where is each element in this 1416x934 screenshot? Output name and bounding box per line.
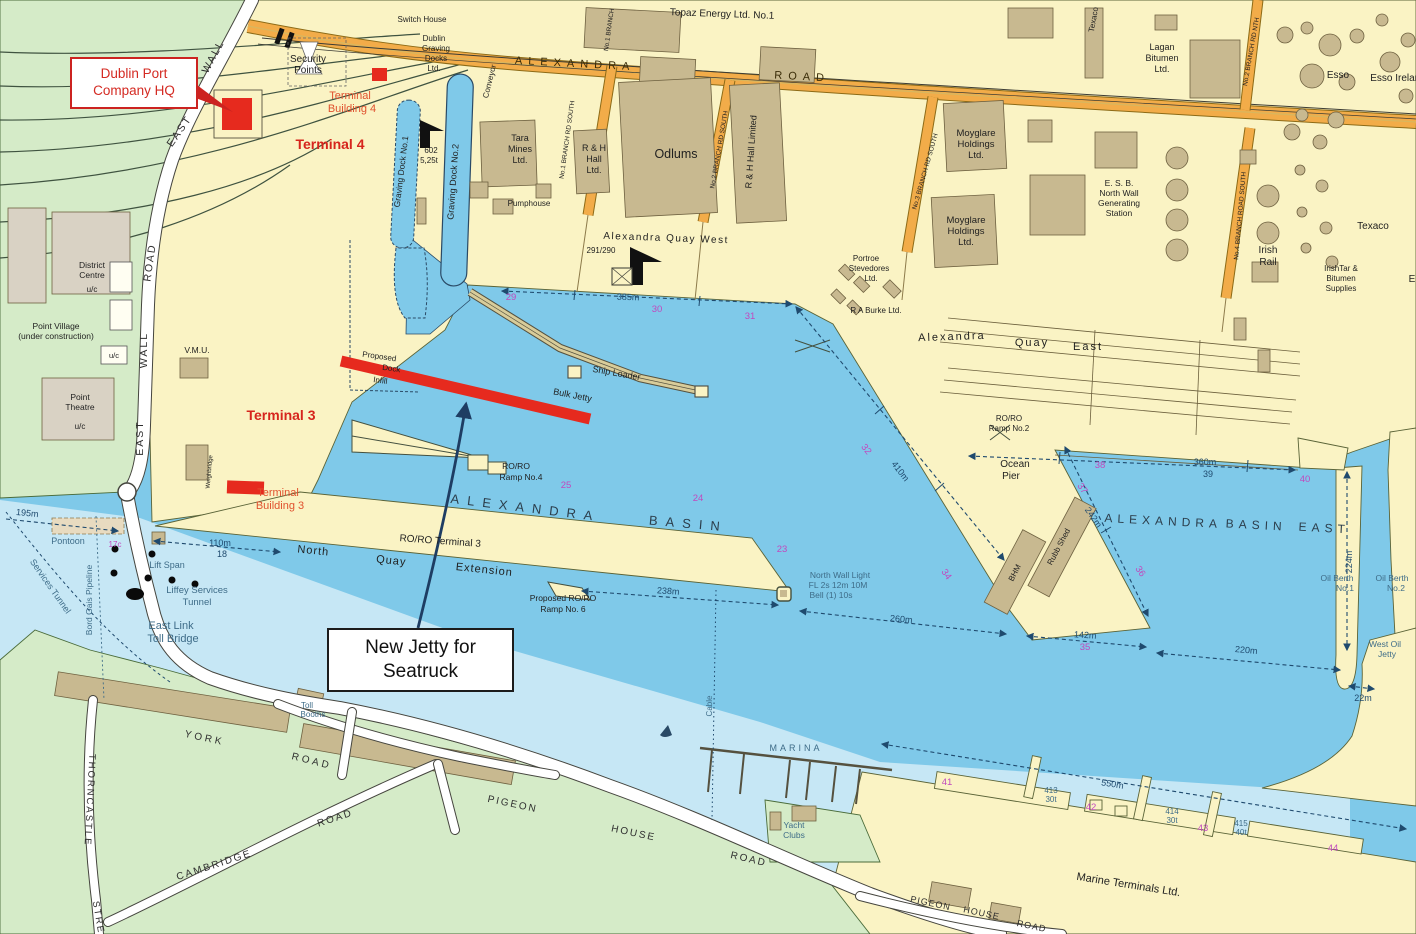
roundabout <box>118 483 136 501</box>
map-label: 42 <box>1086 802 1097 813</box>
map-label: RO/RO <box>996 414 1022 423</box>
map-label: Ramp No.2 <box>989 424 1030 433</box>
map-label: Proposed RO/RO <box>530 593 597 603</box>
map-label: Ocean <box>1000 459 1029 470</box>
map-label: Generating <box>1098 198 1140 208</box>
map-label: Mines <box>508 144 533 154</box>
map-label: Toll <box>301 701 313 710</box>
map-label: 5,25t <box>420 156 439 165</box>
map-label: Rail <box>1259 257 1276 268</box>
map-label: R & H <box>582 143 606 153</box>
map-label: Pumphouse <box>508 199 551 208</box>
map-label: 291/290 <box>587 246 616 255</box>
map-label: Moyglare <box>946 215 985 226</box>
map-label: Station <box>1106 208 1133 218</box>
map-label: Ltd. <box>968 150 984 161</box>
map-label: Terminal <box>257 487 299 499</box>
map-label: East <box>1073 341 1103 353</box>
map-label: Building 3 <box>256 500 304 512</box>
callout-seatruck-line1: New Jetty for <box>329 636 512 660</box>
map-label: 39 <box>1203 469 1213 479</box>
callout-hq-line1: Dublin Port <box>72 66 196 83</box>
map-label: EAST <box>1298 520 1350 537</box>
map-label: EAST <box>134 420 146 455</box>
map-label: Theatre <box>65 402 95 412</box>
map-label: u/c <box>87 285 98 294</box>
map-label: Cable <box>705 695 714 716</box>
map-label: Ltd. <box>1154 64 1169 74</box>
pontoon-symbol <box>52 518 124 534</box>
map-label: Points <box>294 65 322 76</box>
map-label: Ltd. <box>512 155 527 165</box>
map-label: 385m <box>617 292 640 303</box>
map-label: East Link <box>148 620 194 632</box>
map-label: MARINA <box>769 743 822 753</box>
callout-new-jetty-seatruck: New Jetty for Seatruck <box>327 628 514 692</box>
map-label: 414 <box>1165 807 1179 816</box>
callout-hq-line2: Company HQ <box>72 83 196 100</box>
map-label: 602 <box>424 146 438 155</box>
map-label: 43 <box>1198 823 1209 834</box>
map-label: Clubs <box>783 830 805 840</box>
map-label: Holdings <box>948 226 985 237</box>
map-label: E <box>1409 274 1416 285</box>
ship-loader-symbol <box>568 366 581 378</box>
map-label: 35 <box>1080 642 1091 653</box>
map-label: Lagan <box>1149 42 1174 52</box>
map-label: 41 <box>942 777 953 788</box>
map-label: District <box>79 260 106 270</box>
map-label: 30t <box>1166 816 1178 825</box>
map-label: Security <box>290 54 326 65</box>
map-label: Liffey Services <box>166 585 228 596</box>
map-label: Odlums <box>654 147 697 161</box>
callout-seatruck-line2: Seatruck <box>329 660 512 684</box>
map-label: Stevedores <box>849 264 889 273</box>
map-label: Texaco <box>1357 221 1389 232</box>
map-label: (under construction) <box>18 331 94 341</box>
map-label: Point <box>70 392 90 402</box>
map-label: West Oil <box>1369 639 1401 649</box>
map-label: 38 <box>1095 460 1106 471</box>
map-label: 31 <box>745 311 756 322</box>
map-label: Yacht <box>783 820 805 830</box>
map-label: Point Village <box>32 321 79 331</box>
map-label: V.M.U. <box>184 345 209 355</box>
map-label: 360m <box>1194 457 1217 467</box>
map-label: u/c <box>109 351 119 360</box>
map-label: Dublin <box>423 34 446 43</box>
map-label: Graving <box>422 44 450 53</box>
map-label: Oil Berth <box>1320 573 1353 583</box>
map-label: RO/RO <box>502 461 530 471</box>
map-label: 260m <box>890 613 913 625</box>
map-label: IrishTar & <box>1324 264 1358 273</box>
map-label: Supplies <box>1326 284 1357 293</box>
map-label: Quay <box>1015 337 1049 349</box>
map-label: Bell (1) 10s <box>810 590 853 600</box>
map-label: Toll Bridge <box>147 633 198 645</box>
map-label: Portroe <box>853 254 880 263</box>
map-label: Jetty <box>1378 649 1397 659</box>
map-label: 220m <box>1235 644 1258 656</box>
map-label: Bitumen <box>1326 274 1355 283</box>
map-label: No.1 <box>1336 583 1354 593</box>
map-label: Irish <box>1259 245 1278 256</box>
map-label: North Wall <box>1099 188 1138 198</box>
map-label: 29 <box>506 292 517 303</box>
map-label: Bord Gais Pipeline <box>84 565 94 636</box>
map-label: 40 <box>1300 474 1311 485</box>
map-label: Lift Span <box>149 560 185 570</box>
map-label: 415 <box>1234 819 1248 828</box>
map-label: Esso Ireland <box>1370 73 1416 84</box>
map-label: Booths <box>301 710 326 719</box>
map-label: Moyglare <box>956 128 995 139</box>
map-label: 142m <box>1074 629 1097 641</box>
map-label: Ltd. <box>427 64 440 73</box>
map-label: 224m <box>1344 551 1354 574</box>
map-label: 40t <box>1235 828 1247 837</box>
map-label: Pier <box>1002 471 1020 482</box>
map-label: 18 <box>217 549 227 559</box>
map-label: FL 2s 12m 10M <box>809 580 868 590</box>
map-label: R A Burke Ltd. <box>850 306 901 315</box>
terminal-building-4-marker <box>372 68 387 81</box>
map-label: 17c <box>109 540 122 549</box>
map-label: WALL <box>138 332 150 368</box>
map-label: Tunnel <box>183 597 212 608</box>
map-label: u/c <box>75 422 86 431</box>
map-label: Ltd. <box>864 274 877 283</box>
map-label: Pontoon <box>51 536 85 546</box>
map-label: 23 <box>777 544 788 555</box>
map-label: 30t <box>1045 795 1057 804</box>
map-label: 110m <box>209 538 231 548</box>
map-label: 238m <box>657 585 680 597</box>
map-label: 30 <box>652 304 663 315</box>
callout-dublin-port-hq: Dublin Port Company HQ <box>70 57 198 109</box>
map-label: Building 4 <box>328 103 376 115</box>
map-label: Ltd. <box>958 237 974 248</box>
map-canvas: SecurityPointsSwitch HouseDublinGravingD… <box>0 0 1416 934</box>
map-label: Tara <box>511 133 529 143</box>
map-label: 44 <box>1328 843 1339 854</box>
map-label: Centre <box>79 270 105 280</box>
map-label: Switch House <box>398 15 447 24</box>
map-label: Holdings <box>958 139 995 150</box>
map-label: 413 <box>1044 786 1058 795</box>
map-label: Terminal 4 <box>296 136 365 152</box>
map-label: Terminal 3 <box>247 407 316 423</box>
map-label: Terminal <box>329 90 371 102</box>
map-label: Alexandra <box>918 330 986 344</box>
map-label: 25 <box>561 480 572 491</box>
map-label: E. S. B. <box>1105 178 1134 188</box>
dublin-port-hq-building <box>222 98 252 130</box>
port-map: SecurityPointsSwitch HouseDublinGravingD… <box>0 0 1416 934</box>
map-label: Esso <box>1327 70 1350 81</box>
map-label: North Wall Light <box>810 570 871 580</box>
map-label: Ramp No.4 <box>500 472 543 482</box>
map-label: Docks <box>425 54 447 63</box>
map-label: Ltd. <box>586 165 601 175</box>
map-label: Bitumen <box>1145 53 1178 63</box>
map-label: 24 <box>693 493 704 504</box>
map-label: Oil Berth <box>1375 573 1408 583</box>
map-label: No.2 <box>1387 583 1405 593</box>
map-label: Hall <box>586 154 602 164</box>
map-label: Ramp No. 6 <box>540 604 586 614</box>
map-label: 22m <box>1354 693 1372 703</box>
